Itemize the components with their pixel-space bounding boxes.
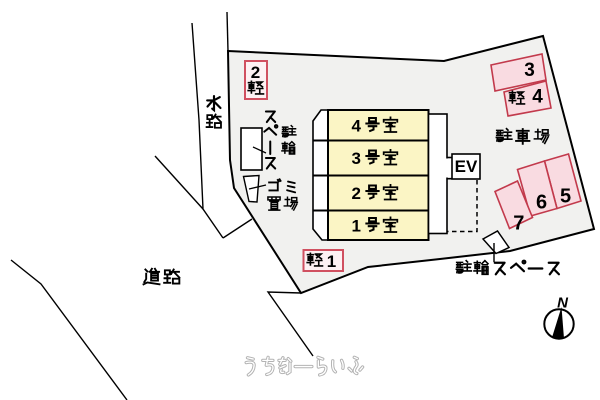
svg-text:1: 1 xyxy=(352,217,361,236)
svg-text:4: 4 xyxy=(532,87,543,108)
svg-text:3: 3 xyxy=(524,60,535,81)
svg-text:1: 1 xyxy=(327,252,336,271)
svg-text:6: 6 xyxy=(536,192,547,214)
svg-text:3: 3 xyxy=(352,149,361,168)
svg-text:N: N xyxy=(557,295,569,312)
svg-text:5: 5 xyxy=(560,186,571,208)
svg-text:2: 2 xyxy=(251,63,260,82)
svg-text:2: 2 xyxy=(352,184,361,203)
svg-text:7: 7 xyxy=(513,213,524,235)
svg-text:EV: EV xyxy=(455,157,478,176)
svg-text:4: 4 xyxy=(352,117,362,136)
